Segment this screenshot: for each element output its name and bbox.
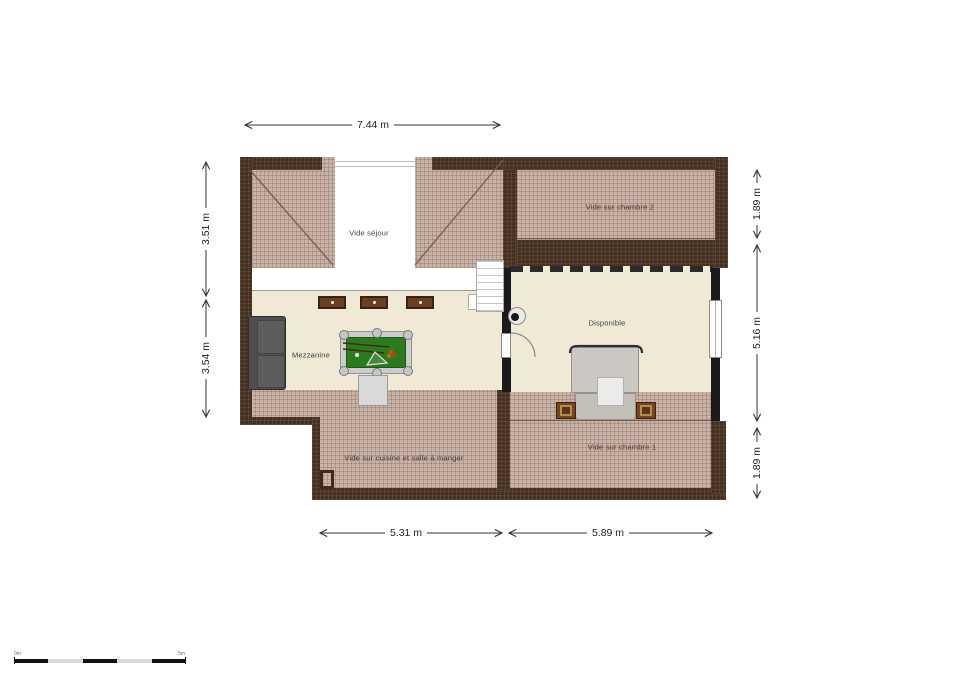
room-label-disponible: Disponible bbox=[588, 319, 625, 328]
pool-pocket bbox=[403, 366, 413, 376]
right-wall-below-window bbox=[711, 357, 720, 421]
pool-table-felt bbox=[346, 337, 406, 368]
room-label-vide-chambre2: Vide sur chambre 2 bbox=[586, 203, 655, 212]
pool-pocket bbox=[339, 330, 349, 340]
door-leaf bbox=[501, 333, 511, 358]
dim-left-lower: 3.54 m bbox=[200, 337, 212, 379]
ceiling-light-dot bbox=[511, 313, 519, 321]
vide-cuisine-hatch-main bbox=[319, 390, 497, 488]
scale-bar: 0m 5m bbox=[14, 659, 186, 665]
scale-segment bbox=[48, 659, 82, 663]
wall-step-horizontal bbox=[240, 417, 319, 425]
room-label-vide-sejour: Vide séjour bbox=[349, 229, 389, 238]
cabinet-knob bbox=[419, 301, 422, 304]
room-label-vide-chambre1: Vide sur chambre 1 bbox=[588, 443, 657, 452]
scale-tick-start bbox=[14, 657, 15, 664]
scale-end-label: 5m bbox=[178, 651, 185, 657]
scale-start-label: 0m bbox=[14, 651, 21, 657]
side-table bbox=[358, 375, 388, 406]
staircase-landing bbox=[468, 294, 477, 310]
dim-bottom-right: 5.89 m bbox=[587, 527, 629, 539]
cabinet-knob bbox=[373, 301, 376, 304]
scale-segment bbox=[14, 659, 48, 663]
nightstand-left bbox=[556, 402, 576, 419]
dim-top-width: 7.44 m bbox=[352, 119, 394, 131]
room-label-vide-cuisine: Vide sur cuisine et salle à manger bbox=[344, 454, 463, 463]
scale-segment bbox=[152, 659, 186, 663]
wall-right-outer-lower bbox=[711, 421, 726, 494]
sejour-opening bbox=[335, 157, 415, 268]
chambre1-inner-line bbox=[510, 420, 711, 421]
dim-right-upper: 1.89 m bbox=[751, 183, 763, 225]
room-label-mezzanine: Mezzanine bbox=[292, 351, 330, 360]
staircase bbox=[476, 260, 504, 312]
sofa-cushion-bottom bbox=[257, 355, 285, 388]
dim-right-lower: 1.89 m bbox=[751, 442, 763, 484]
pool-pocket bbox=[339, 366, 349, 376]
dim-bottom-left: 5.31 m bbox=[385, 527, 427, 539]
wall-top-right bbox=[505, 157, 728, 170]
wall-top-left-a bbox=[240, 157, 322, 170]
wall-cuisine-chambre1-divider bbox=[497, 390, 510, 490]
wall-mid-vertical bbox=[503, 157, 517, 270]
wall-chambre2-bottom-band bbox=[517, 240, 715, 268]
sofa bbox=[248, 316, 286, 390]
pool-table bbox=[340, 331, 412, 374]
bed-blanket bbox=[597, 377, 624, 406]
nightstand-right bbox=[636, 402, 656, 419]
cabinet-3 bbox=[406, 296, 434, 309]
cabinet-1 bbox=[318, 296, 346, 309]
right-wall-above-window bbox=[711, 268, 720, 301]
chimney-notch bbox=[320, 470, 334, 489]
chambre2-inner-line bbox=[517, 238, 715, 239]
wall-top-left-b bbox=[432, 157, 505, 170]
nightstand-top bbox=[560, 405, 572, 416]
pool-pocket bbox=[403, 330, 413, 340]
window-mullion bbox=[715, 301, 716, 357]
floor-plan: Vide séjour Vide sur chambre 2 Mezzanine… bbox=[0, 0, 965, 682]
scale-segment bbox=[117, 659, 151, 663]
wall-bottom-outer bbox=[312, 488, 726, 500]
pool-pocket bbox=[372, 328, 382, 338]
sofa-cushion-top bbox=[257, 320, 285, 354]
scale-segment bbox=[83, 659, 117, 663]
dim-left-upper: 3.51 m bbox=[200, 208, 212, 250]
wall-right-outer-upper bbox=[715, 157, 728, 268]
cabinet-2 bbox=[360, 296, 388, 309]
disponible-dashed-wall bbox=[510, 266, 713, 272]
nightstand-top bbox=[640, 405, 652, 416]
sejour-railing-line-2 bbox=[335, 166, 415, 167]
stairwell-wall-lower bbox=[502, 357, 511, 392]
dim-right-middle: 5.16 m bbox=[751, 312, 763, 354]
scale-tick-end bbox=[185, 657, 186, 664]
sejour-railing-line-1 bbox=[335, 161, 415, 162]
cabinet-knob bbox=[331, 301, 334, 304]
